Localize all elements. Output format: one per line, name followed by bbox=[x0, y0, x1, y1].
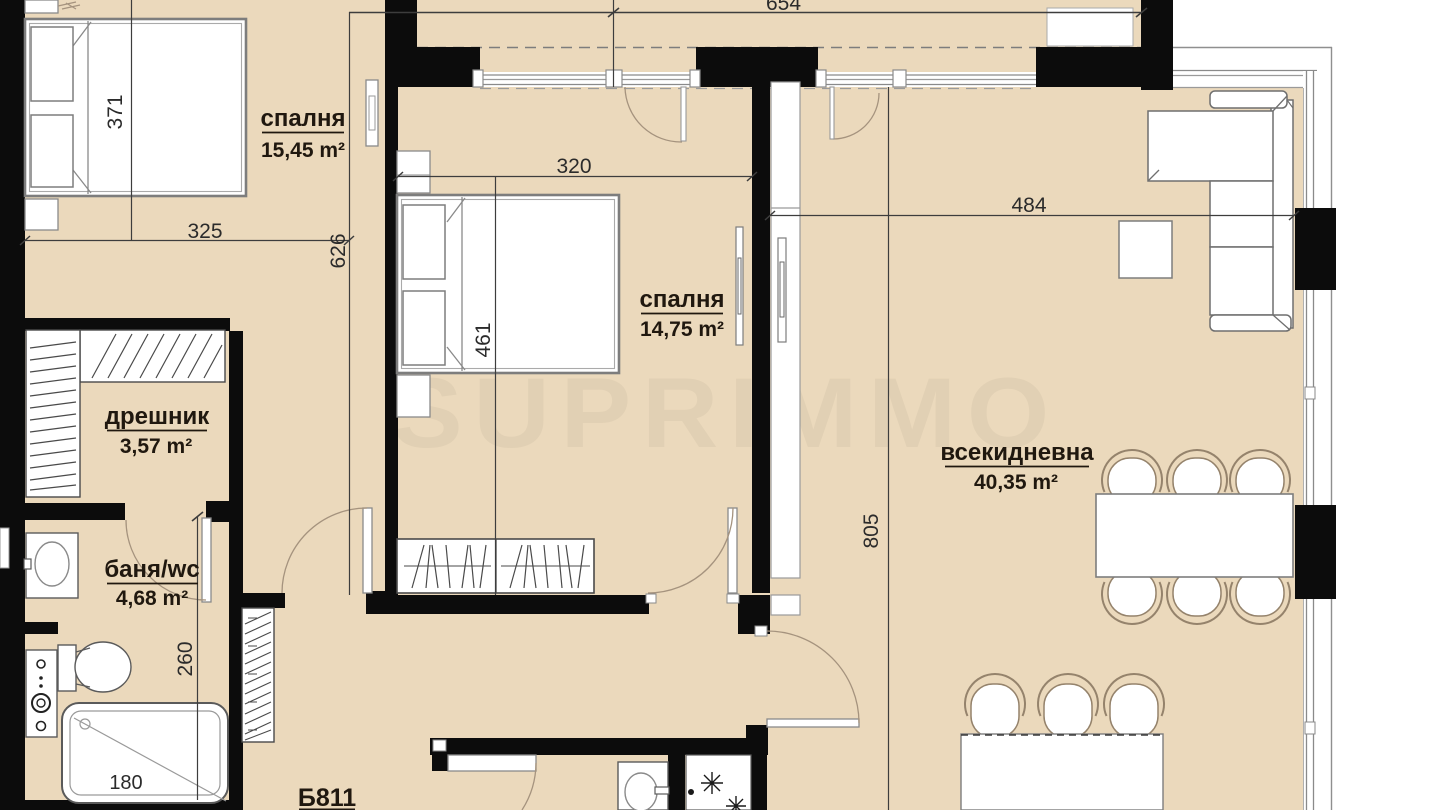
svg-text:320: 320 bbox=[556, 155, 591, 178]
svg-text:654: 654 bbox=[766, 0, 801, 15]
svg-text:260: 260 bbox=[174, 641, 197, 676]
svg-text:180: 180 bbox=[109, 772, 142, 794]
svg-text:325: 325 bbox=[187, 220, 222, 243]
svg-text:Б811: Б811 bbox=[298, 784, 356, 810]
svg-text:спалня: спалня bbox=[640, 286, 725, 313]
svg-text:4,68 m²: 4,68 m² bbox=[116, 587, 188, 610]
svg-text:дрешник: дрешник bbox=[105, 403, 210, 430]
svg-text:371: 371 bbox=[104, 94, 127, 129]
svg-text:461: 461 bbox=[472, 322, 495, 357]
svg-text:484: 484 bbox=[1011, 194, 1046, 217]
svg-text:баня/wc: баня/wc bbox=[104, 556, 199, 583]
svg-text:40,35 m²: 40,35 m² bbox=[974, 471, 1058, 494]
svg-text:15,45 m²: 15,45 m² bbox=[261, 139, 345, 162]
svg-text:626: 626 bbox=[327, 233, 350, 268]
svg-text:14,75 m²: 14,75 m² bbox=[640, 318, 724, 341]
svg-text:805: 805 bbox=[860, 513, 883, 548]
svg-text:спалня: спалня bbox=[261, 105, 346, 132]
svg-text:3,57 m²: 3,57 m² bbox=[120, 435, 192, 458]
svg-text:всекидневна: всекидневна bbox=[940, 439, 1094, 466]
